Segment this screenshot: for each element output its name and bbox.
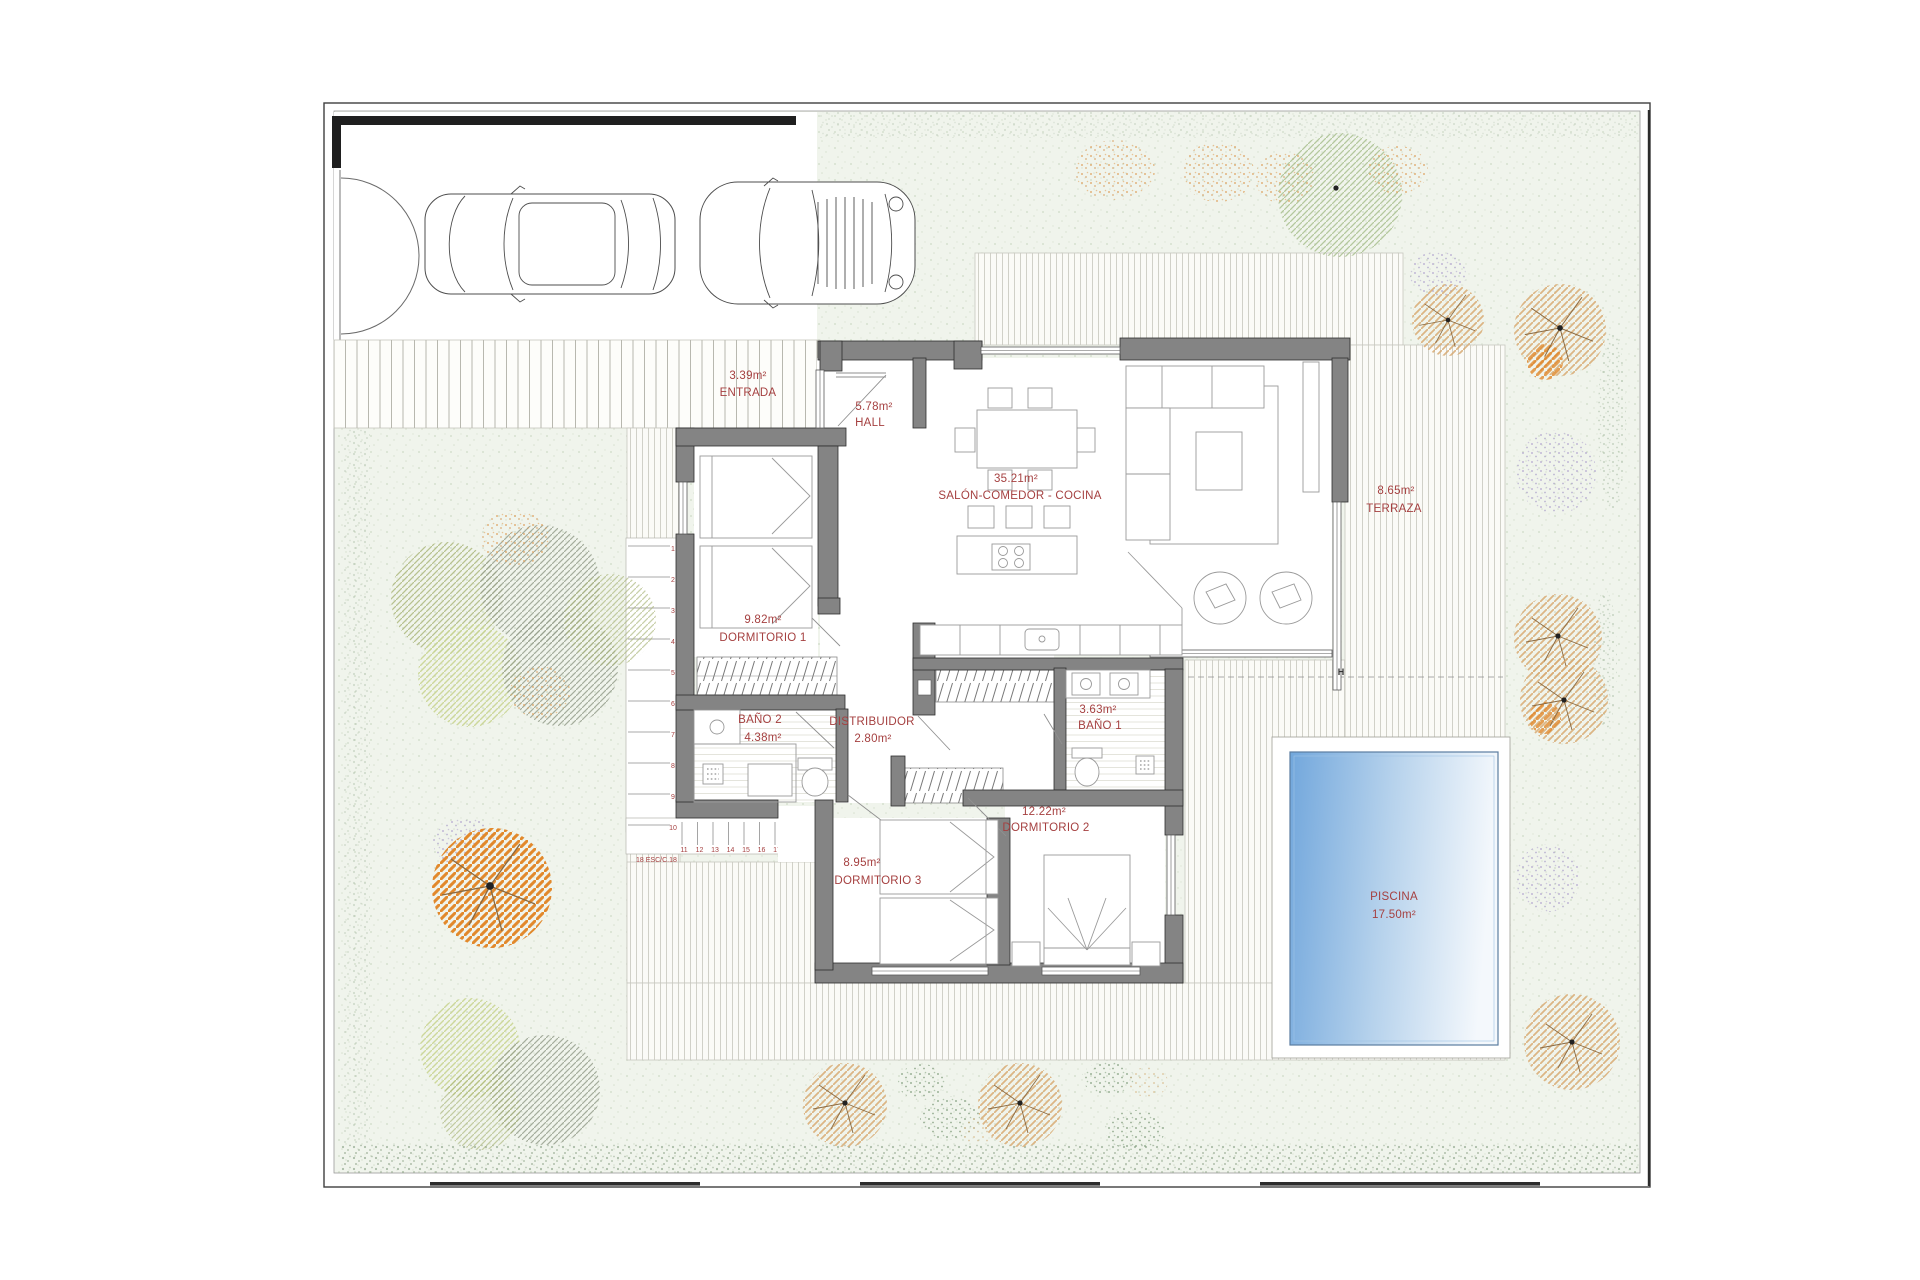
- stair-number: 12: [696, 847, 704, 854]
- wardrobe-hall-closet: [936, 670, 1054, 702]
- tan-tree: [1524, 994, 1620, 1090]
- stair-number: 16: [758, 847, 766, 854]
- label-terraza-area: 8.65m²: [1377, 485, 1414, 497]
- kitchen-island: [957, 506, 1077, 574]
- corridor-floor: [838, 446, 913, 606]
- label-entrada-name: ENTRADA: [720, 387, 777, 399]
- stair-number: 8: [671, 763, 675, 770]
- boundary-dash: [1260, 1182, 1540, 1186]
- wall-niche: [918, 680, 931, 695]
- top-hedge: [820, 112, 1640, 138]
- stair-number: 15: [742, 847, 750, 854]
- car-1: [425, 186, 675, 302]
- label-dorm1-name: DORMITORIO 1: [719, 632, 806, 644]
- perimeter-wall-top: [336, 116, 796, 125]
- stair-number: 7: [671, 732, 675, 739]
- boundary-dash: [430, 1182, 700, 1186]
- deck-below-stairs: [627, 862, 815, 983]
- dorm3-south-window: [872, 967, 988, 975]
- salon-north-window: [981, 347, 1120, 354]
- bush: [1082, 1062, 1134, 1094]
- dorm3-beds: [880, 820, 998, 964]
- bush: [481, 510, 549, 566]
- label-dorm3-name: DORMITORIO 3: [834, 875, 921, 887]
- shower-drain: [703, 764, 723, 784]
- dorm2-south-window: [1042, 967, 1140, 975]
- label-dorm1-area: 9.82m²: [744, 614, 781, 626]
- floor-plan: 12345678910 11121314151617 18 ESC/C.18 1…: [0, 0, 1920, 1280]
- entrada-paving: [334, 340, 820, 428]
- bush: [510, 666, 570, 718]
- vanity: [1066, 670, 1150, 698]
- label-bano2-area: 4.38m²: [744, 732, 781, 744]
- gravel-strip: [344, 428, 370, 1146]
- car-2: [700, 178, 915, 308]
- label-dorm3-area: 8.95m²: [843, 857, 880, 869]
- coffee-table: [1196, 432, 1242, 490]
- bush: [1105, 1110, 1165, 1150]
- stair-number: 4: [671, 639, 675, 646]
- bush: [1598, 330, 1626, 510]
- stair-note: 18 ESC/C.18: [636, 857, 677, 864]
- bush: [1368, 146, 1428, 194]
- bush: [1516, 844, 1580, 912]
- label-entrada-area: 3.39m²: [729, 370, 766, 382]
- stair-number: 3: [671, 608, 675, 615]
- bush: [1182, 142, 1254, 202]
- label-dorm2-name: DORMITORIO 2: [1002, 822, 1089, 834]
- dorm1-west-window: [679, 482, 687, 534]
- label-salon-area: 35.21m²: [994, 473, 1038, 485]
- wardrobe-dorm1: [697, 657, 837, 695]
- tv-bench: [1303, 362, 1319, 492]
- tan-tree: [978, 1063, 1062, 1147]
- label-bano1-name: BAÑO 1: [1078, 719, 1122, 732]
- stair-number: 9: [671, 794, 675, 801]
- bush: [1128, 1067, 1168, 1097]
- deck-top: [975, 253, 1403, 345]
- tree: [564, 574, 656, 666]
- stair-number: 6: [671, 701, 675, 708]
- label-piscina-name: PISCINA: [1370, 891, 1418, 903]
- bidet: [748, 764, 792, 796]
- label-distribuidor-area: 2.80m²: [854, 733, 891, 745]
- tan-tree: [1412, 284, 1484, 356]
- dorm2-east-window: [1167, 835, 1175, 915]
- boundary-dash: [860, 1182, 1100, 1186]
- hall-west-glass: [816, 370, 824, 428]
- floor-plan-svg: 12345678910 11121314151617 18 ESC/C.18 1…: [0, 0, 1920, 1280]
- stair-number: 1: [671, 546, 675, 553]
- hedge-row: [340, 1144, 1640, 1174]
- perimeter-wall-left: [332, 116, 341, 168]
- label-piscina-area: 17.50m²: [1372, 909, 1416, 921]
- label-hall-name: HALL: [855, 417, 885, 429]
- bush: [1075, 140, 1155, 200]
- label-bano1-area: 3.63m²: [1079, 704, 1116, 716]
- salon-east-glass-door: [1333, 502, 1341, 690]
- label-bano2-name: BAÑO 2: [738, 713, 782, 726]
- label-dorm2-area: 12.22m²: [1022, 806, 1066, 818]
- bush: [898, 1064, 946, 1100]
- hose-bib-marker: H: [1338, 667, 1345, 677]
- label-salon-name: SALÓN-COMEDOR - COCINA: [938, 489, 1101, 502]
- label-distribuidor-name: DISTRIBUIDOR: [829, 716, 914, 728]
- bush: [1516, 430, 1596, 514]
- label-terraza-name: TERRAZA: [1366, 503, 1422, 515]
- tan-tree: [803, 1063, 887, 1147]
- stair-number: 10: [669, 825, 677, 832]
- stair-number: 11: [680, 847, 687, 854]
- landing-floor: [778, 806, 815, 862]
- label-hall-area: 5.78m²: [855, 401, 892, 413]
- stair-number: 14: [727, 847, 735, 854]
- stair-number: 2: [671, 577, 675, 584]
- tree: [440, 1070, 520, 1150]
- tan-tree: [1520, 656, 1608, 744]
- stair-number: 5: [671, 670, 675, 677]
- stair-number: 13: [711, 847, 719, 854]
- washbasin: [694, 710, 740, 744]
